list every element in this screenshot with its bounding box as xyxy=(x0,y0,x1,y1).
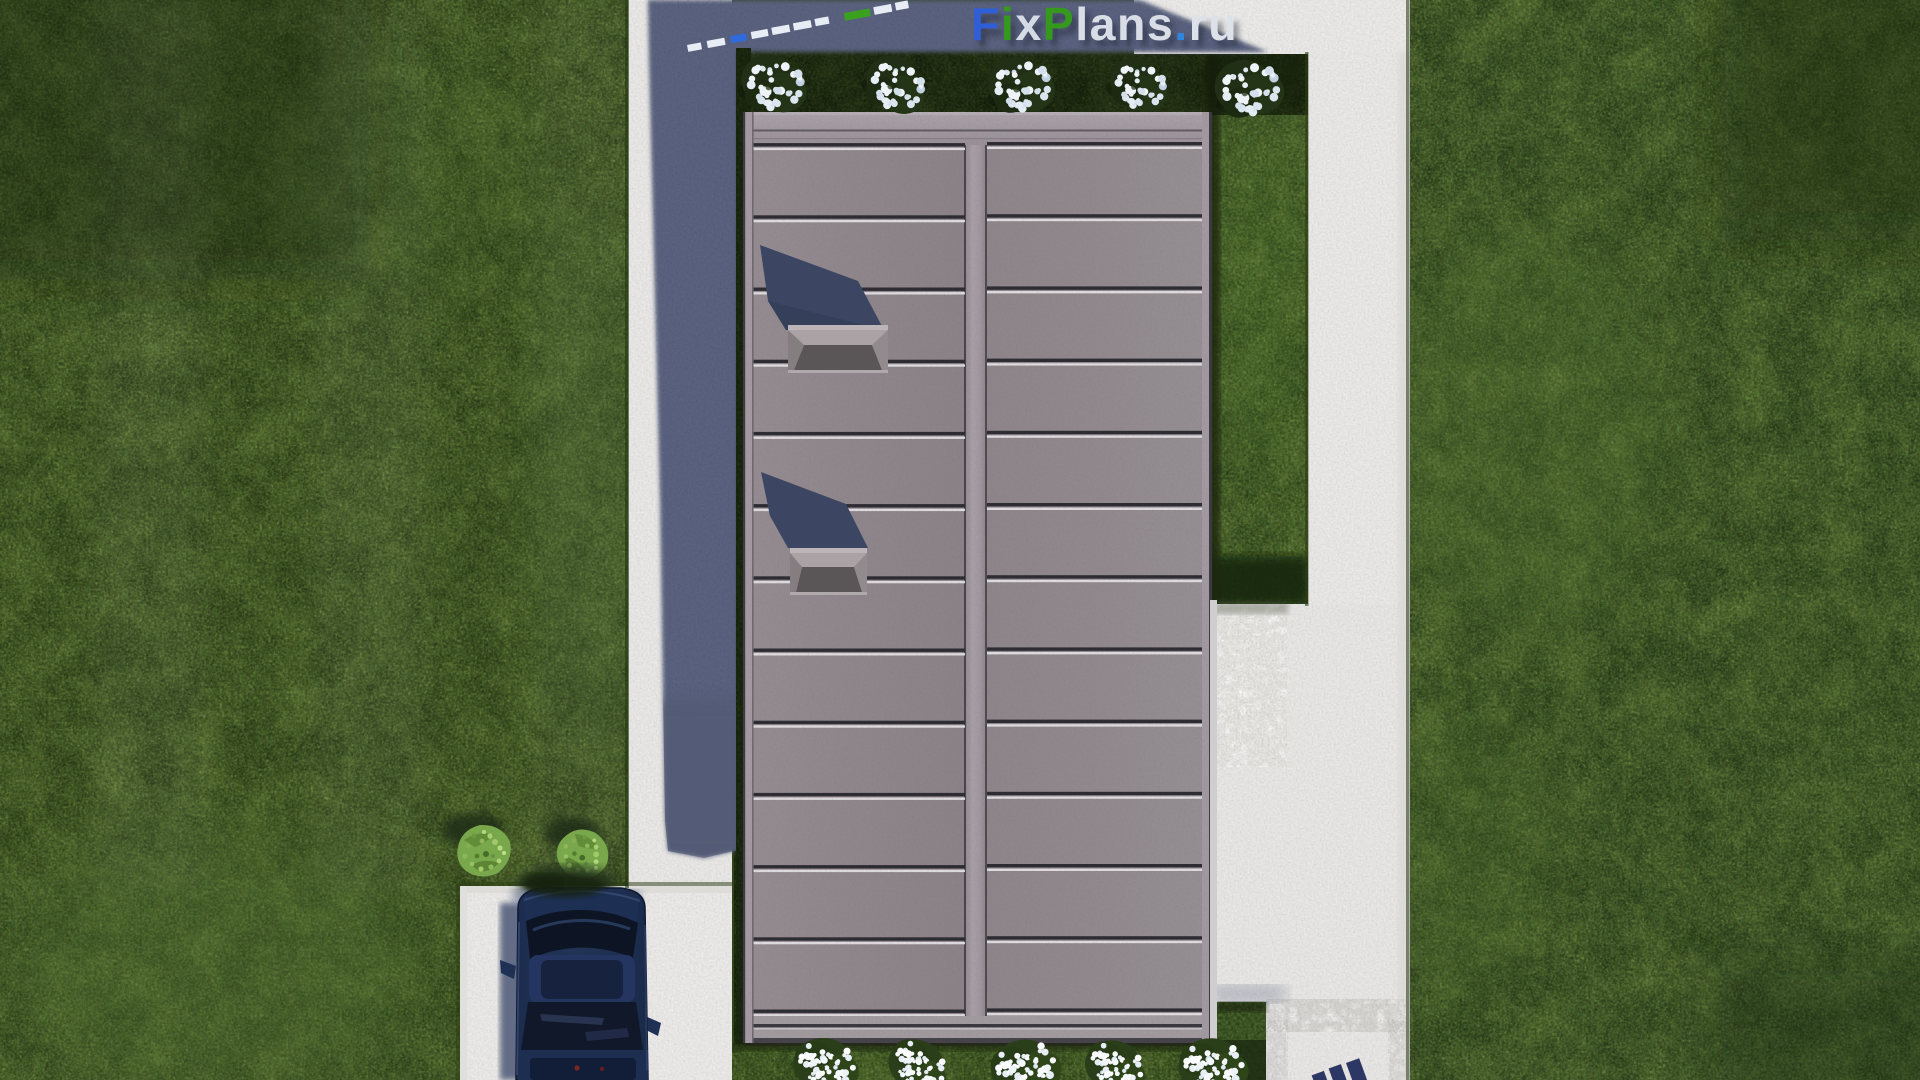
svg-text:FixPlans.ru: FixPlans.ru xyxy=(971,0,1238,50)
